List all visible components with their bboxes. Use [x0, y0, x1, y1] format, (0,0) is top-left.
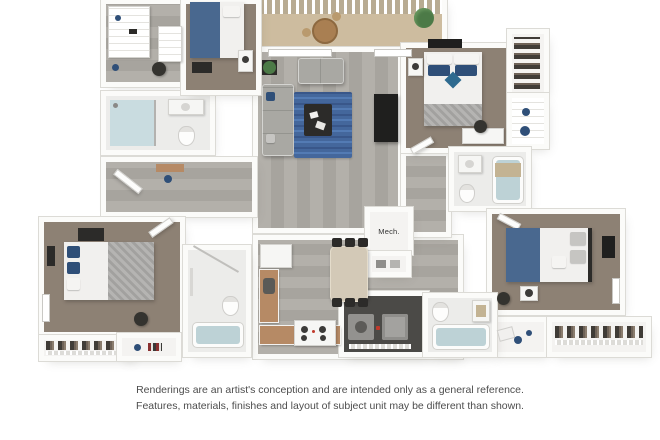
patio-chair: [302, 28, 311, 37]
sofa-chaise: [298, 58, 344, 84]
towel-bar: [190, 268, 193, 296]
mechanical-closet: Mech.: [370, 212, 408, 250]
patio-chair: [332, 12, 341, 21]
bedroom-bottom-right-window: [612, 278, 620, 304]
dryer: [382, 314, 408, 340]
stove-knob: [312, 330, 315, 333]
stored-item: [115, 15, 121, 21]
washer-door: [355, 321, 367, 333]
potted-plant: [263, 61, 276, 74]
desk-chair: [474, 120, 487, 133]
patio-table: [312, 18, 338, 44]
bed-blanket: [424, 104, 482, 126]
throw-pillow: [266, 92, 275, 101]
bath-water: [196, 326, 240, 344]
pantry-shelves: [108, 6, 150, 58]
lamp: [242, 56, 249, 63]
bed: [190, 2, 244, 58]
desk-chair: [497, 292, 510, 305]
toilet: [222, 296, 239, 316]
bed-pillow: [428, 65, 450, 76]
burner: [301, 326, 308, 333]
lamp: [412, 63, 419, 70]
coffee-table: [304, 104, 332, 136]
bedroom-bottom-left-window: [42, 294, 50, 322]
bed-pillow: [67, 262, 80, 274]
desk-accessory: [112, 64, 119, 71]
hanging-clothes: [46, 341, 128, 350]
backpack: [164, 175, 172, 183]
desk-chair: [152, 62, 166, 76]
toilet: [459, 184, 475, 203]
towels: [476, 305, 486, 317]
bed-blanket: [506, 228, 540, 282]
headboard: [78, 228, 104, 241]
shelf-decor: [522, 108, 530, 116]
storage-shelf-closet: [372, 256, 406, 272]
balcony-railing: [256, 0, 442, 14]
dining-table: [330, 246, 368, 302]
bed: [64, 242, 154, 300]
bed-pillow: [454, 54, 479, 64]
bed-pillow: [427, 54, 452, 64]
desk-chair: [134, 312, 148, 326]
bed-pillow: [570, 250, 586, 263]
bath-water: [436, 328, 486, 346]
closet-bottom-right: [552, 322, 646, 352]
dining-chair: [332, 298, 342, 307]
disclaimer-line-2: Features, materials, finishes and layout…: [0, 398, 660, 414]
detergent-bottle: [376, 326, 380, 330]
living-room-window: [374, 49, 412, 57]
bath-mat: [495, 163, 521, 177]
wall-tv: [428, 39, 462, 48]
bed: [424, 52, 482, 126]
hanging-clothes: [555, 326, 643, 338]
bed-pillow: [67, 246, 80, 258]
bathtub: [432, 324, 490, 350]
bed-pillow: [455, 65, 477, 76]
book: [309, 111, 318, 119]
living-room-window: [268, 49, 332, 57]
closet-top-right: [512, 34, 544, 92]
shelf-decor: [520, 126, 530, 136]
bathroom-vanity: [168, 99, 204, 115]
hallway-right: [406, 156, 446, 232]
bed: [506, 228, 592, 282]
disclaimer-line-1: Renderings are an artist's conception an…: [0, 382, 660, 398]
disclaimer-text: Renderings are an artist's conception an…: [0, 382, 660, 414]
wire-shelf: [46, 351, 128, 355]
bed-blanket: [190, 2, 220, 58]
throw-pillow: [266, 134, 275, 143]
headboard: [588, 228, 592, 282]
burner: [319, 326, 326, 333]
storage-box: [390, 260, 400, 268]
coat-shelf: [156, 164, 184, 172]
dining-chair: [345, 238, 355, 247]
tray: [315, 121, 326, 131]
balcony: [256, 0, 442, 46]
nightstand: [520, 286, 538, 301]
wall-art: [47, 246, 55, 266]
hanging-clothes: [514, 37, 540, 89]
wire-shelf: [349, 344, 411, 349]
refrigerator: [260, 244, 292, 268]
toilet: [178, 126, 195, 146]
bathroom-vanity: [472, 300, 490, 322]
speaker: [525, 289, 533, 297]
floorplan-rendering: Mech.: [0, 0, 660, 372]
desk-accessory: [514, 336, 522, 344]
bed-pillow: [67, 278, 80, 290]
shower-head: [113, 103, 118, 108]
wall-tv: [602, 236, 615, 258]
wardrobe: [158, 26, 182, 62]
desk-accessory: [134, 344, 141, 351]
balcony-plant: [414, 8, 434, 28]
toilet: [432, 302, 449, 322]
bed-pillow: [570, 232, 586, 245]
sink: [181, 103, 190, 111]
dining-chair: [358, 298, 368, 307]
floorplan-page: { "scene": { "type": "3d-floorplan-rende…: [0, 0, 660, 440]
dining-chair: [332, 238, 342, 247]
tv-console: [374, 94, 398, 142]
sink: [465, 160, 474, 168]
closet-bottom-left: [44, 340, 130, 356]
dining-chair: [345, 298, 355, 307]
mech-closet-label: Mech.: [378, 227, 399, 236]
stove: [294, 320, 336, 346]
desk-books: [148, 343, 162, 351]
shower: [110, 100, 156, 146]
laundry-closet: [344, 296, 424, 352]
bathtub: [492, 156, 524, 204]
nightstand: [238, 50, 253, 72]
desk-accessory: [526, 330, 532, 336]
kitchen-sink: [263, 278, 275, 294]
bed-pillow: [223, 6, 240, 17]
burner: [301, 335, 307, 341]
stored-item: [129, 29, 137, 34]
shelf-unit-top-right: [512, 98, 544, 144]
bathroom-vanity: [458, 155, 482, 173]
burner: [320, 335, 326, 341]
washer: [348, 314, 374, 340]
dining-chair: [358, 238, 368, 247]
storage-box: [376, 260, 386, 268]
storage-bench: [192, 62, 212, 73]
bathtub: [192, 322, 244, 348]
wire-shelf: [555, 340, 643, 345]
nightstand: [408, 58, 423, 76]
bed-blanket: [108, 242, 154, 300]
bed-pillow: [552, 256, 566, 268]
